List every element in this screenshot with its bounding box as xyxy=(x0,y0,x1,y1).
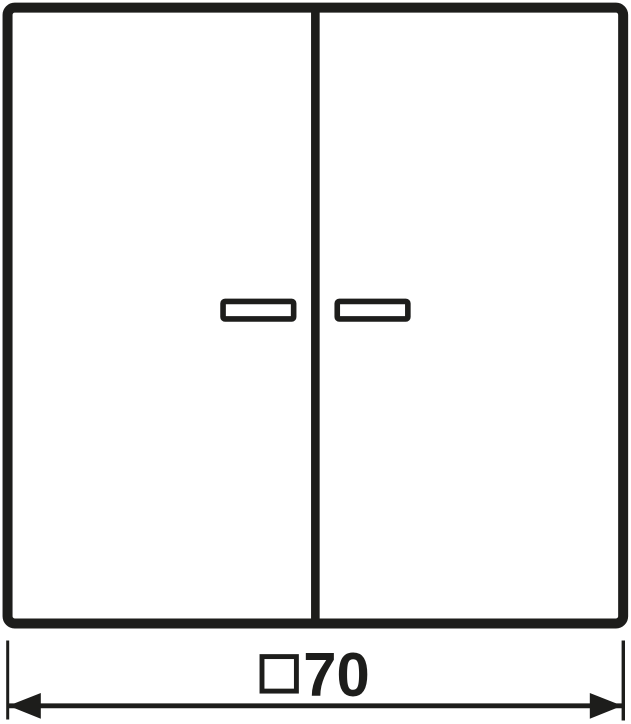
svg-text:70: 70 xyxy=(303,640,370,710)
